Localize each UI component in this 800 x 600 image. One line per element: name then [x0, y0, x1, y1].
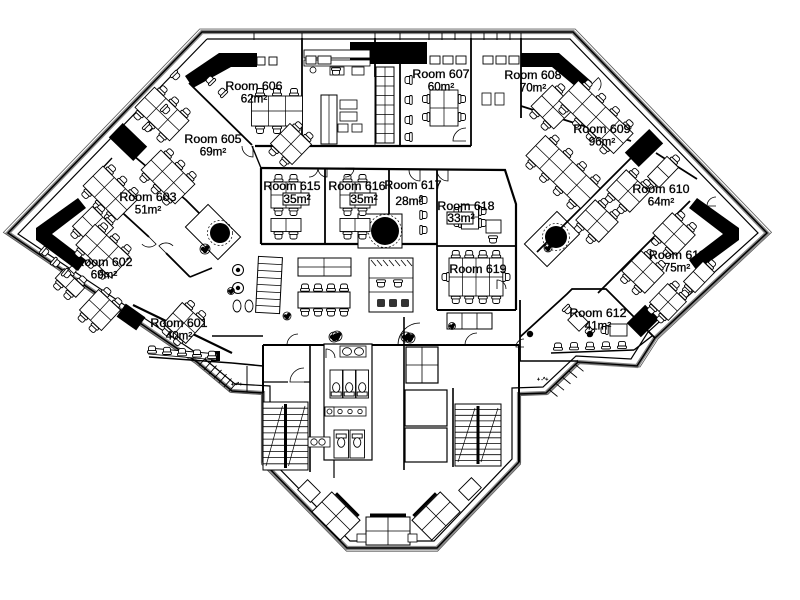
- svg-text:70m²: 70m²: [520, 82, 547, 95]
- svg-text:Room 601: Room 601: [150, 316, 207, 330]
- svg-text:62m²: 62m²: [241, 93, 268, 106]
- svg-text:Room 602: Room 602: [75, 255, 132, 269]
- svg-text:51m²: 51m²: [135, 204, 162, 217]
- svg-text:41m²: 41m²: [585, 320, 612, 333]
- svg-text:33m²: 33m²: [447, 211, 474, 225]
- svg-text:Room 611: Room 611: [649, 248, 705, 262]
- svg-text:Room 607: Room 607: [412, 67, 469, 81]
- svg-text:Room 619: Room 619: [449, 262, 506, 276]
- svg-text:Room 615: Room 615: [263, 179, 320, 193]
- svg-text:64m²: 64m²: [648, 196, 675, 209]
- svg-text:Room 606: Room 606: [225, 79, 282, 93]
- svg-text:Room 609: Room 609: [573, 122, 630, 136]
- svg-text:35m²: 35m²: [283, 192, 310, 206]
- svg-text:60m²: 60m²: [428, 81, 455, 94]
- svg-text:+ -^+: + -^+: [537, 377, 548, 383]
- svg-text:28m²: 28m²: [395, 194, 422, 208]
- svg-text:69m²: 69m²: [200, 146, 227, 159]
- svg-text:Room 608: Room 608: [504, 68, 561, 82]
- svg-text:40m²: 40m²: [166, 330, 193, 343]
- svg-text:Room 610: Room 610: [632, 182, 689, 196]
- svg-text:35m²: 35m²: [350, 192, 377, 206]
- svg-text:Room 612: Room 612: [569, 306, 626, 320]
- svg-text:75m²: 75m²: [664, 262, 691, 275]
- svg-text:Room 617: Room 617: [384, 178, 441, 192]
- svg-text:96m²: 96m²: [589, 136, 616, 149]
- svg-text:Room 616: Room 616: [328, 179, 385, 193]
- svg-text:69m²: 69m²: [91, 269, 118, 282]
- svg-text:Room 603: Room 603: [119, 190, 176, 204]
- svg-text:Room 605: Room 605: [184, 132, 241, 146]
